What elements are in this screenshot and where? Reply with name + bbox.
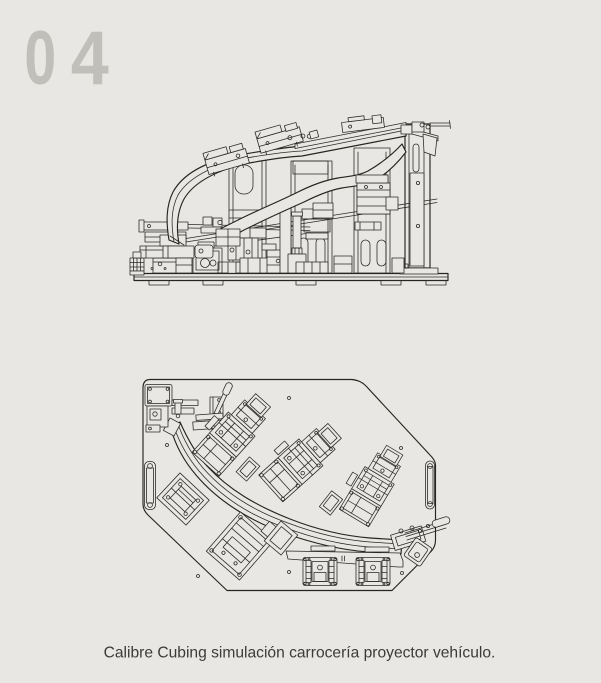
svg-text:0: 0: [24, 16, 56, 101]
svg-text:Calibre Cubing simulación carr: Calibre Cubing simulación carrocería pro…: [104, 645, 496, 662]
svg-text:4: 4: [71, 17, 109, 101]
